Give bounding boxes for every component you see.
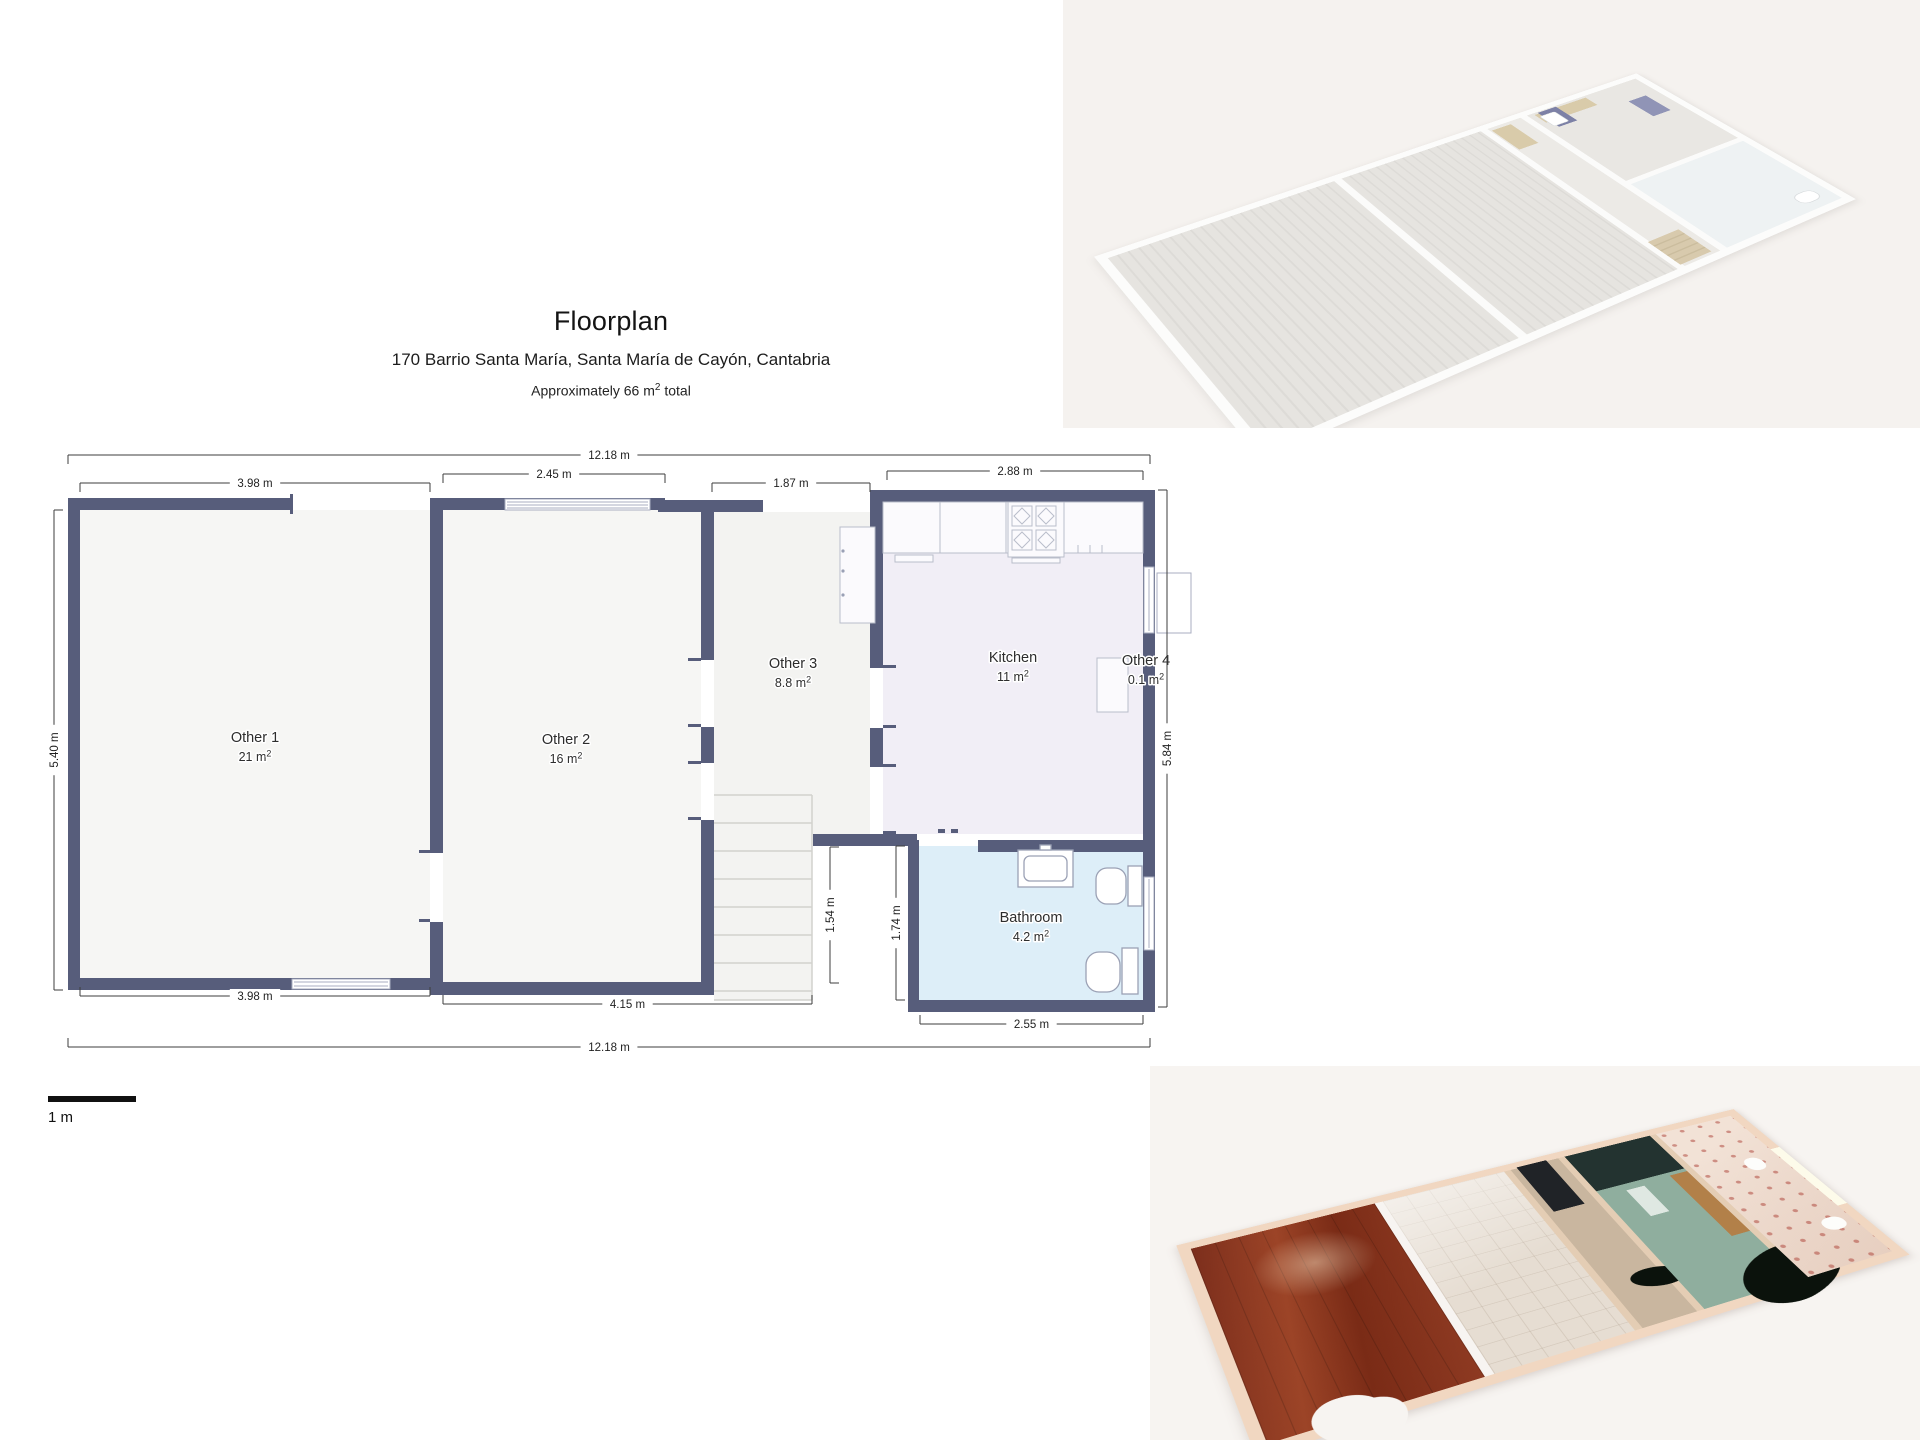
other-3-name: Other 3: [769, 656, 817, 672]
door-hinge: [938, 829, 945, 833]
kitchen-name: Kitchen: [989, 650, 1037, 666]
stove-front: [1012, 558, 1060, 563]
dimension-label: 3.98 m: [237, 478, 272, 490]
dimension-label: 2.55 m: [1014, 1019, 1049, 1031]
page: { "header": { "title": "Floorplan", "sub…: [0, 0, 1920, 1440]
bathroom-sink: [1018, 845, 1073, 887]
door-jamb: [688, 658, 701, 661]
white-model-apartment: [1094, 73, 1856, 428]
page-title: Floorplan: [155, 306, 1067, 337]
scan-kitchen-appliance: [1627, 1186, 1670, 1216]
other-4-name: Other 4: [1122, 653, 1170, 669]
scale-bar: 1 m: [48, 1096, 136, 1126]
toilet-2: [1086, 948, 1138, 994]
dimension-label: 2.88 m: [997, 466, 1032, 478]
total-area-suffix: total: [660, 383, 690, 399]
door-jamb: [290, 494, 293, 514]
dimension-label: 1.74 m: [891, 905, 903, 940]
kitchen-appliance-2: [1629, 95, 1671, 116]
floorplan-2d: 1 m Other 121 m2Other 216 m2Other 38.8 m…: [40, 440, 1200, 1130]
stair-floor: [714, 795, 812, 1000]
door-jamb: [688, 817, 701, 820]
floorplan-header: Floorplan 170 Barrio Santa María, Santa …: [155, 306, 1067, 399]
dimension-label: 2.45 m: [536, 469, 571, 481]
dimension-label: 5.84 m: [1162, 731, 1174, 766]
scan-bidet: [1817, 1215, 1851, 1232]
other-4-area: 0.1 m2: [1128, 672, 1164, 688]
other-1-name: Other 1: [231, 730, 279, 746]
dimension-label: 12.18 m: [588, 1042, 630, 1054]
textured-model-apartment: [1176, 1109, 1909, 1440]
dimension-label: 12.18 m: [588, 450, 630, 462]
door-jamb: [688, 724, 701, 727]
bath-fixture-toilet: [1790, 189, 1823, 206]
door-jamb: [688, 761, 701, 764]
dimension-label: 4.15 m: [610, 999, 645, 1011]
dimension-label: 3.98 m: [237, 991, 272, 1003]
door-jamb: [883, 764, 896, 767]
door-jamb: [883, 665, 896, 668]
door-jamb: [419, 919, 430, 922]
door-jamb: [419, 850, 430, 853]
toilet-1: [1096, 866, 1142, 906]
render-3d-textured-model: [1150, 1066, 1920, 1440]
door-jamb: [883, 831, 896, 834]
render-3d-white-model: [1063, 0, 1920, 428]
address-subtitle: 170 Barrio Santa María, Santa María de C…: [155, 350, 1067, 370]
other-2-name: Other 2: [542, 732, 590, 748]
bathroom-area: 4.2 m2: [1013, 929, 1049, 945]
door-hinge: [951, 829, 958, 833]
dimension-label: 1.54 m: [825, 897, 837, 932]
scale-label: 1 m: [48, 1109, 73, 1126]
total-area-prefix: Approximately 66 m: [531, 383, 655, 399]
door-jamb: [883, 725, 896, 728]
cabinet-other3: [840, 527, 875, 623]
dimension-label: 1.87 m: [773, 478, 808, 490]
dish-rack: [895, 555, 933, 562]
window-sill-kitchen: [1157, 573, 1191, 633]
bathroom-name: Bathroom: [1000, 910, 1063, 926]
other-3-area: 8.8 m2: [775, 675, 811, 691]
stove: [1008, 502, 1064, 563]
scan-toilet: [1740, 1156, 1770, 1172]
scan-bath-window: [1770, 1147, 1847, 1206]
total-area-text: Approximately 66 m2 total: [155, 382, 1067, 399]
window-other1-bottom: [292, 979, 390, 989]
dimension-label: 5.40 m: [49, 732, 61, 767]
